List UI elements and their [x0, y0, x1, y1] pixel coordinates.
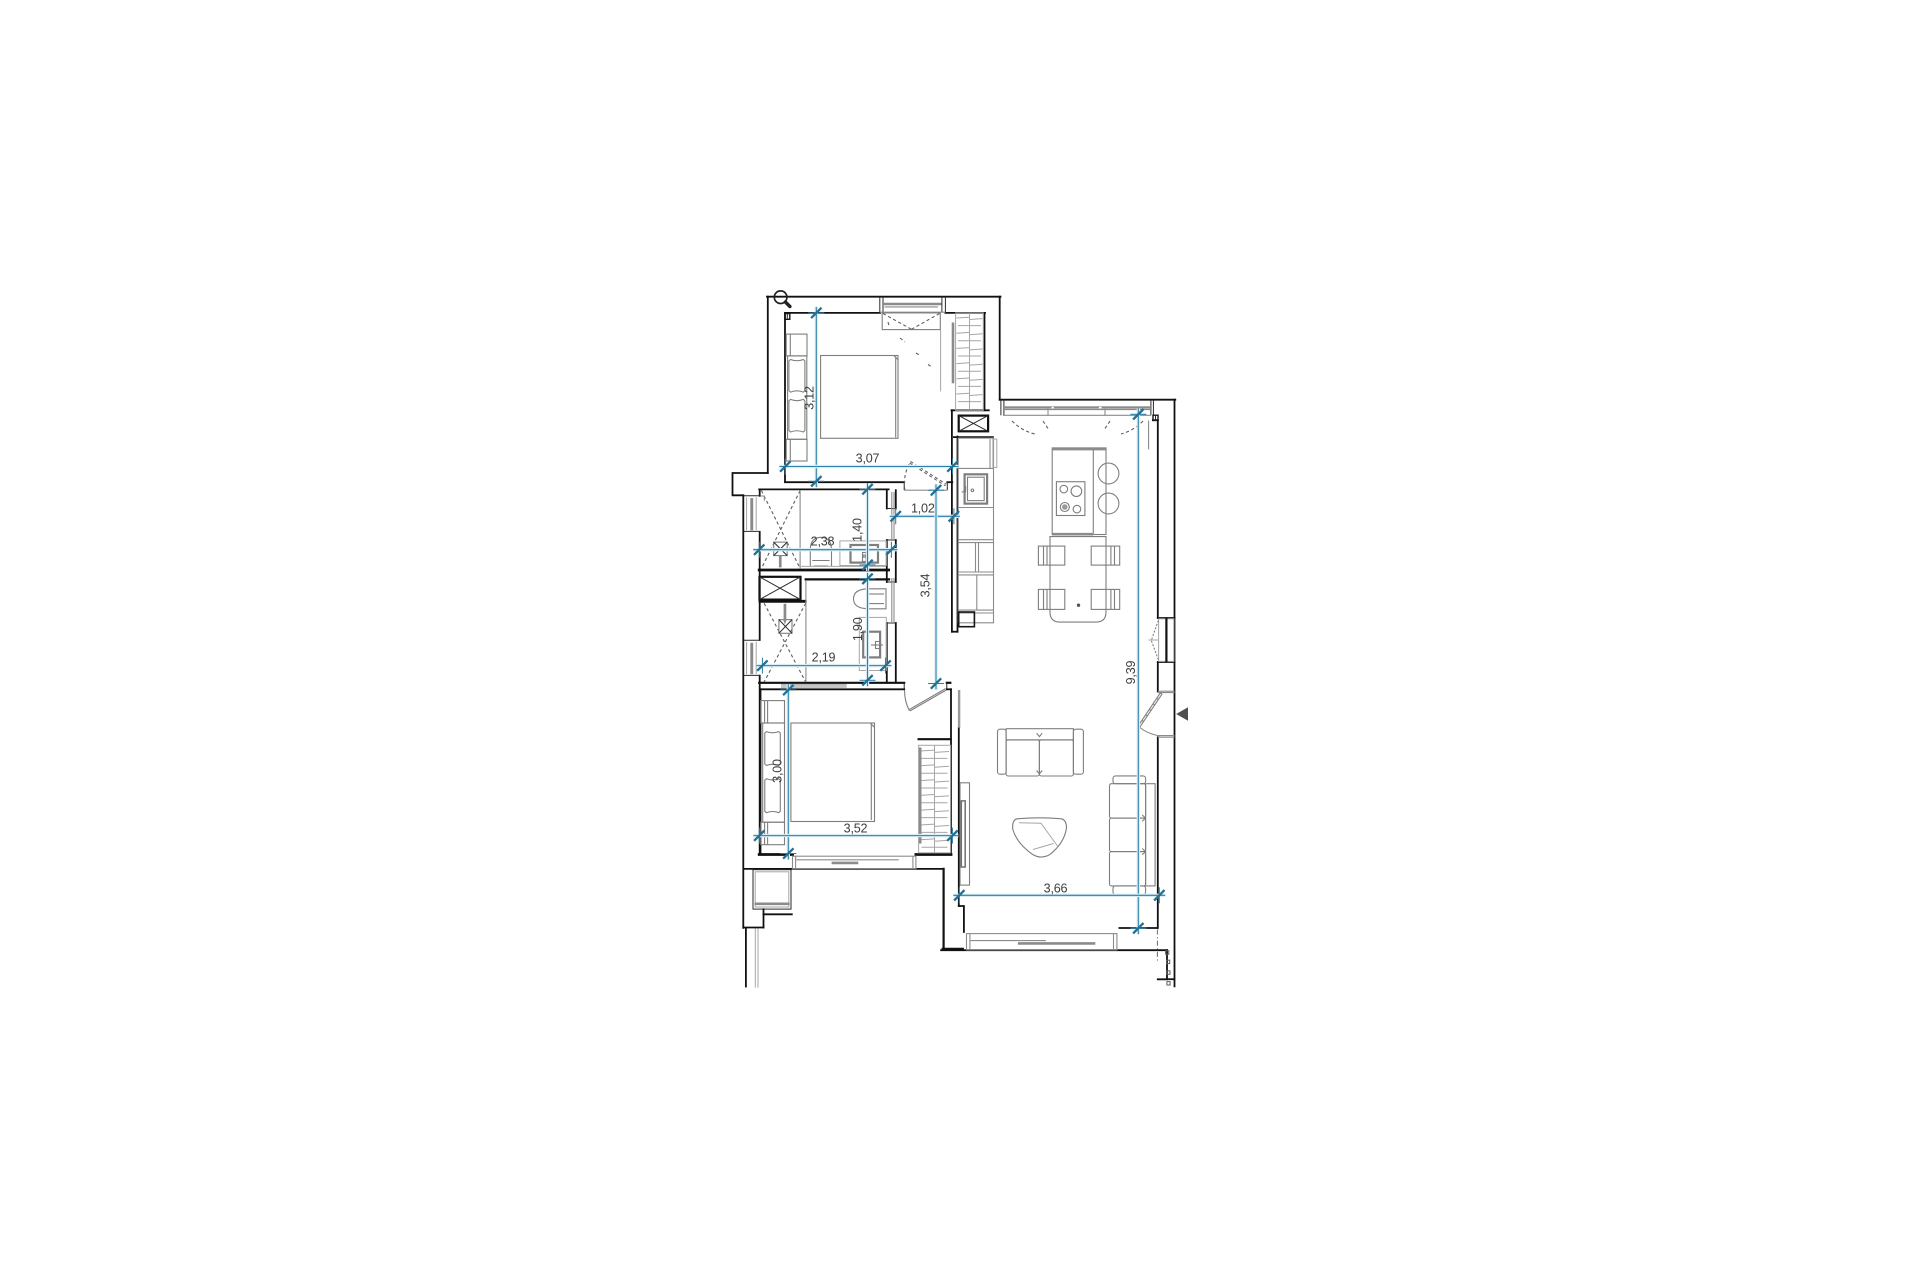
svg-text:3,07: 3,07: [856, 452, 880, 466]
svg-text:3,52: 3,52: [844, 822, 868, 836]
svg-text:2,38: 2,38: [811, 535, 835, 549]
svg-text:3,66: 3,66: [1044, 882, 1068, 896]
svg-text:2,19: 2,19: [812, 651, 836, 665]
svg-text:1,90: 1,90: [851, 617, 865, 641]
svg-text:3,00: 3,00: [771, 759, 785, 783]
svg-text:1,02: 1,02: [911, 501, 935, 515]
svg-text:1,40: 1,40: [851, 518, 865, 542]
svg-text:3,12: 3,12: [803, 386, 817, 410]
svg-text:9,39: 9,39: [1124, 660, 1138, 684]
svg-text:3,54: 3,54: [919, 573, 933, 597]
